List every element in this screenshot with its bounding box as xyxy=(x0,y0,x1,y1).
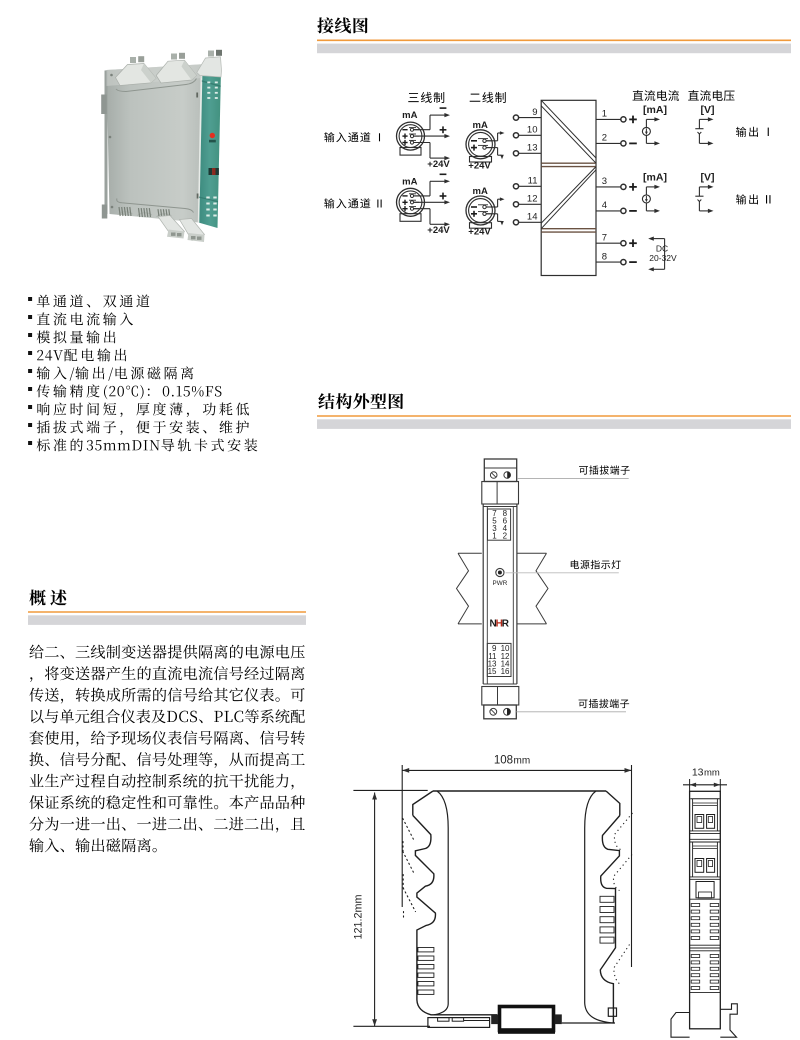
svg-text:2: 2 xyxy=(503,531,508,540)
svg-text:7: 7 xyxy=(602,232,607,243)
svg-text:+24V: +24V xyxy=(468,161,491,172)
svg-text:16: 16 xyxy=(501,667,510,676)
svg-text:NHR: NHR xyxy=(490,619,510,630)
svg-text:15: 15 xyxy=(488,667,497,676)
svg-text:mA: mA xyxy=(473,120,488,131)
svg-text:12: 12 xyxy=(527,194,538,205)
svg-text:4: 4 xyxy=(602,200,607,211)
svg-text:[V]: [V] xyxy=(701,172,715,184)
svg-text:13: 13 xyxy=(527,143,538,154)
svg-text:+24V: +24V xyxy=(427,159,450,170)
svg-text:108: 108 xyxy=(494,755,513,767)
svg-text:[mA]: [mA] xyxy=(643,172,667,184)
svg-text:3: 3 xyxy=(602,176,607,187)
svg-text:mm: mm xyxy=(704,768,720,779)
svg-text:11: 11 xyxy=(528,176,538,187)
svg-text:121.2mm: 121.2mm xyxy=(353,894,365,939)
svg-text:10: 10 xyxy=(527,125,538,136)
svg-text:[V]: [V] xyxy=(701,104,715,116)
svg-text:8: 8 xyxy=(602,251,607,262)
svg-text:+24V: +24V xyxy=(468,227,491,238)
svg-text:mA: mA xyxy=(402,110,417,121)
svg-text:20-32V: 20-32V xyxy=(649,253,677,263)
svg-text:9: 9 xyxy=(532,107,537,118)
svg-text:mA: mA xyxy=(402,176,417,187)
svg-text:14: 14 xyxy=(527,212,538,223)
svg-text:mA: mA xyxy=(473,186,488,197)
svg-text:1: 1 xyxy=(492,531,497,540)
svg-text:1: 1 xyxy=(602,109,607,120)
svg-text:2: 2 xyxy=(602,133,607,144)
svg-text:PWR: PWR xyxy=(493,580,508,587)
svg-text:+24V: +24V xyxy=(427,225,450,236)
svg-text:mm: mm xyxy=(514,756,531,767)
svg-text:13: 13 xyxy=(692,767,704,779)
svg-text:[mA]: [mA] xyxy=(643,104,667,116)
